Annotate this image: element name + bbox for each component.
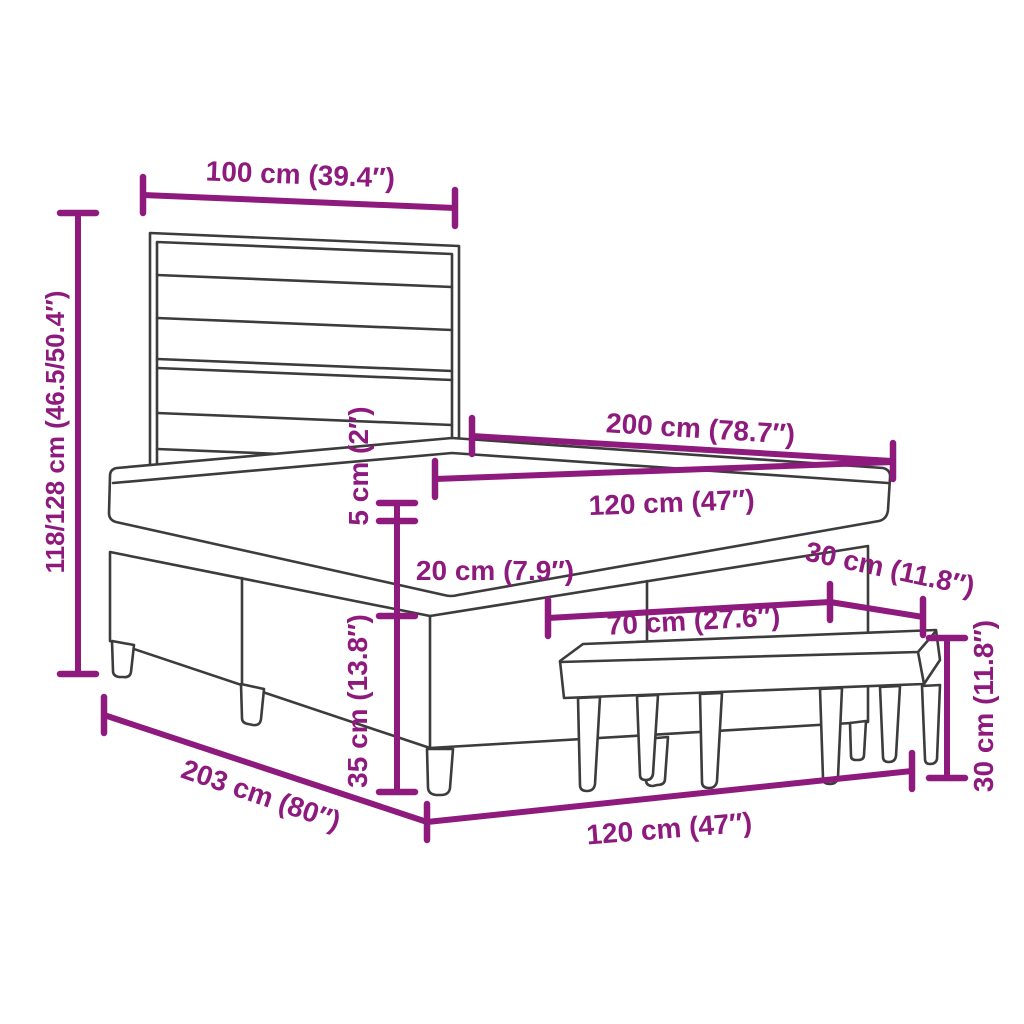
dim-headboard-height: 118/128 cm (46.5/50.4″) bbox=[40, 213, 96, 674]
dim-label-frame-width-bottom: 120 cm (47″) bbox=[585, 807, 753, 851]
dim-label-mattress-thickness: 20 cm (7.9″) bbox=[416, 555, 574, 586]
headboard bbox=[150, 233, 459, 474]
bench-leg bbox=[578, 697, 600, 791]
dim-label-topper-thickness: 5 cm (2″) bbox=[343, 406, 374, 525]
dim-bench-depth: 30 cm (11.8″) bbox=[803, 536, 978, 635]
bed-dimension-diagram: 100 cm (39.4″) 118/128 cm (46.5/50.4″) 2… bbox=[0, 0, 1024, 1024]
dim-label-base-height: 35 cm (13.8″) bbox=[342, 614, 373, 788]
bench-leg bbox=[820, 688, 842, 784]
dim-label-bench-height: 30 cm (11.8″) bbox=[968, 620, 999, 792]
dim-label-headboard-width: 100 cm (39.4″) bbox=[205, 155, 395, 193]
bed-leg bbox=[427, 749, 453, 795]
diagram-canvas: 100 cm (39.4″) 118/128 cm (46.5/50.4″) 2… bbox=[0, 0, 1024, 1024]
dim-label-bed-width-top: 120 cm (47″) bbox=[588, 484, 755, 521]
bed-leg bbox=[241, 684, 264, 725]
dim-line bbox=[143, 195, 455, 208]
bench-leg bbox=[880, 686, 900, 762]
bench-leg bbox=[700, 693, 722, 788]
bench-leg bbox=[922, 685, 940, 764]
dim-label-headboard-height: 118/128 cm (46.5/50.4″) bbox=[40, 291, 70, 574]
dim-headboard-width: 100 cm (39.4″) bbox=[143, 155, 455, 226]
bed-leg bbox=[112, 641, 134, 677]
bed-leg bbox=[850, 721, 866, 760]
bed-line-art bbox=[109, 233, 940, 795]
